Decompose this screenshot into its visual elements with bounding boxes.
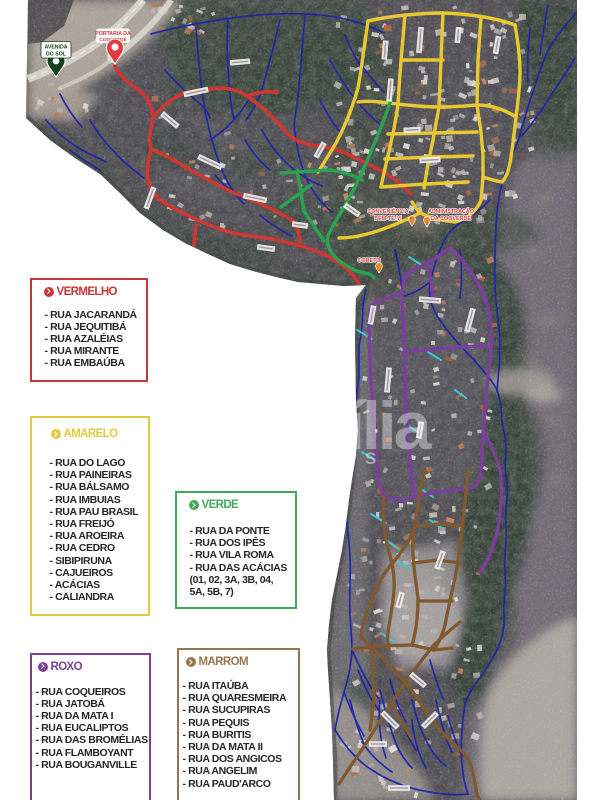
svg-text:ília: ília: [346, 388, 433, 464]
svg-text:DA COOVERDE: DA COOVERDE: [431, 216, 471, 222]
svg-text:PORTARIA DA: PORTARIA DA: [95, 31, 131, 37]
svg-text:DO SOL: DO SOL: [46, 52, 67, 58]
svg-text:BEM-TE-VI: BEM-TE-VI: [374, 216, 402, 222]
svg-text:CONVENIÊNCIA: CONVENIÊNCIA: [367, 207, 408, 215]
svg-text:ADMINISTRAÇÃO: ADMINISTRAÇÃO: [428, 208, 474, 215]
svg-text:AVENIDA: AVENIDA: [45, 45, 68, 51]
svg-text:S: S: [365, 449, 376, 468]
